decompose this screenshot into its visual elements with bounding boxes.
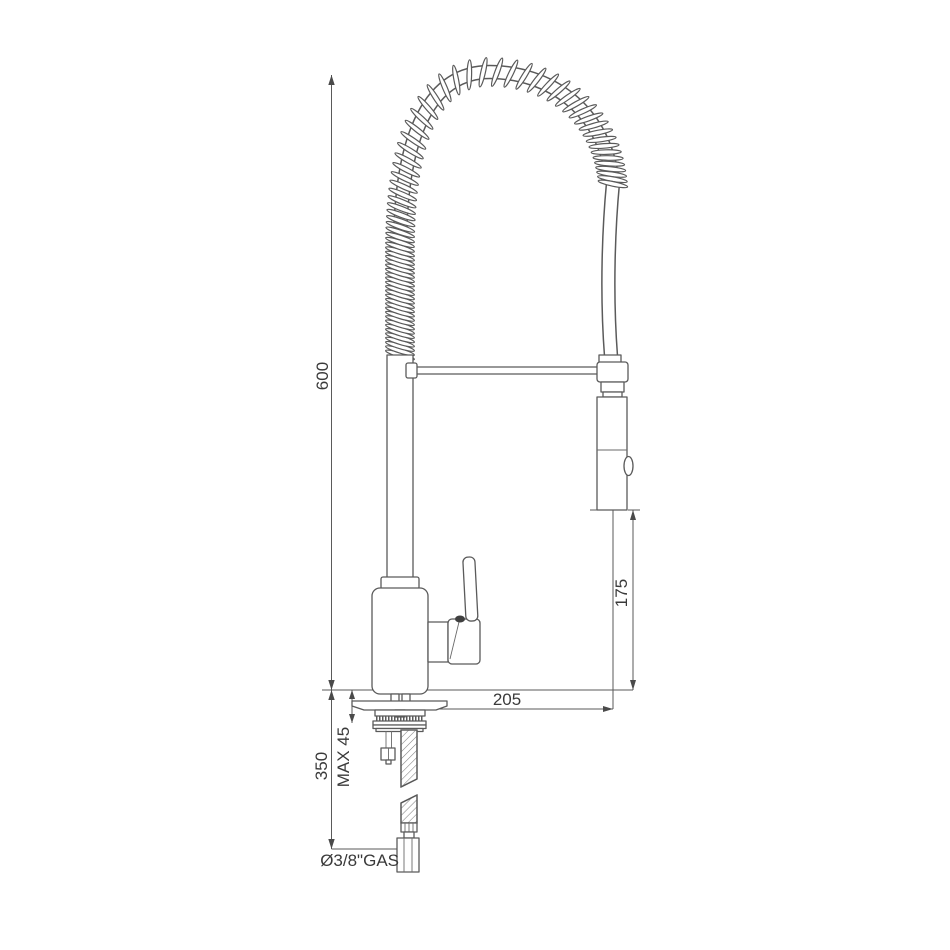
spray-head-assembly [597,355,633,510]
escutcheon-plate [352,701,447,710]
handle-lever [463,557,478,622]
arm-bracket [406,363,417,378]
hex-nut [397,838,419,872]
under-cone [375,710,425,716]
head-ring [603,392,622,397]
faucet-technical-drawing: 600 350 MAX 45 175 205 Ø3/8"GAS [0,0,950,950]
dim-label-spout-reach: 205 [493,690,521,709]
faucet-body [372,588,428,694]
drawing-canvas: 600 350 MAX 45 175 205 Ø3/8"GAS [0,0,950,950]
stud-tip [386,760,391,764]
head-upper-collar [601,382,624,392]
handle-neck [428,622,448,662]
dim-label-connection-size: Ø3/8"GAS [320,851,399,870]
dim-label-overall-height: 600 [313,362,332,390]
mounting-hardware [352,694,447,764]
handle-cartridge [448,619,480,664]
stud-nut [381,748,395,760]
spring-coil-loops [385,57,628,361]
nut-neck [404,832,414,838]
supply-hose [397,730,419,872]
dim-label-deck-thickness: MAX 45 [334,727,353,787]
pullout-hose [608,183,613,356]
spring-coil-hose [385,57,628,361]
dim-head-to-deck [590,510,640,709]
spray-head-body [597,397,627,510]
hose-lower-hatched [401,795,417,823]
riser-collar [381,577,419,589]
dimension-lines [322,75,640,849]
dim-label-under-deck: 350 [312,752,331,780]
head-holder-block [597,362,628,382]
dim-label-head-to-deck: 175 [612,579,631,607]
handle-pivot [455,616,465,623]
spray-mode-button [624,457,633,476]
riser-column [381,355,419,589]
hose-upper-hatched [401,730,417,787]
support-arm [406,363,599,378]
